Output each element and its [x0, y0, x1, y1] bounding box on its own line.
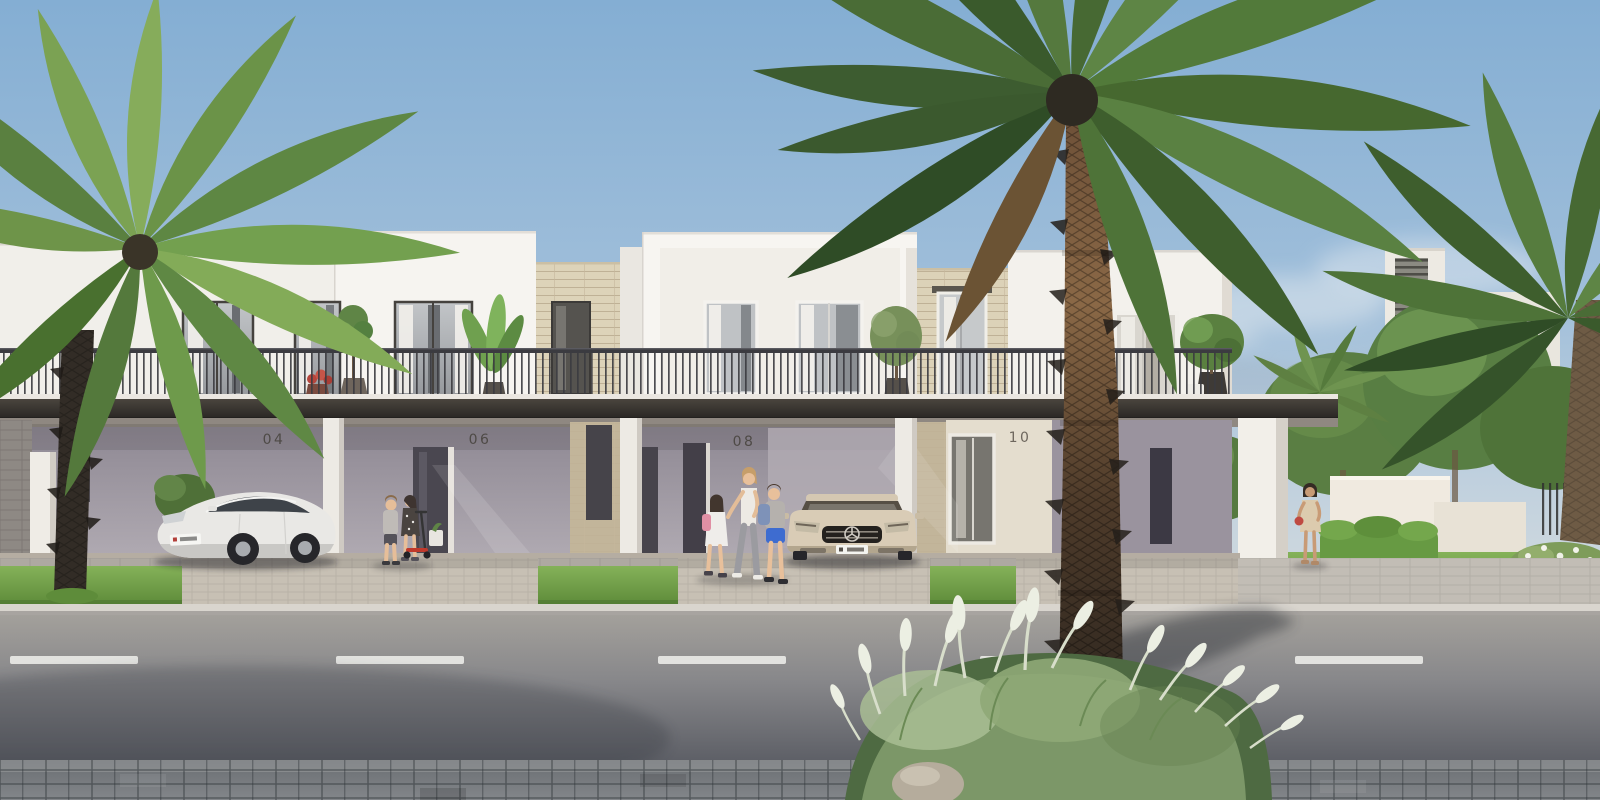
house-number-06: 06 — [469, 432, 492, 448]
grass-verge-2 — [538, 566, 678, 604]
coupe-mirror-right — [915, 513, 924, 519]
sedan-mirror — [208, 506, 217, 511]
rendered-scene: 04 06 08 10 — [0, 0, 1600, 800]
coupe-plate — [836, 545, 868, 554]
entry-planter-06 — [429, 530, 443, 546]
sedan-plate — [170, 533, 202, 546]
coupe-grille — [822, 526, 882, 543]
grass-verge-3 — [930, 566, 1016, 604]
stone-window-lower-1 — [586, 425, 612, 520]
house-number-04: 04 — [263, 432, 286, 448]
carport-door-10 — [1150, 448, 1172, 544]
left-palm-base-tuft — [46, 588, 98, 604]
red-handbag — [1295, 517, 1304, 526]
kerb — [0, 604, 1600, 611]
house-number-08: 08 — [733, 434, 756, 450]
scene-svg: 04 06 08 10 — [0, 0, 1600, 800]
house-number-10: 10 — [1009, 430, 1032, 446]
